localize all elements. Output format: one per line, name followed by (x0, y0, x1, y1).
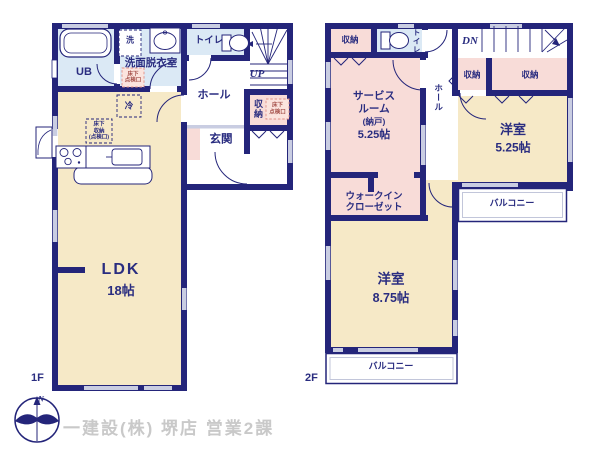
toilet-icon-1f (222, 35, 249, 51)
floor2-label: 2F (305, 372, 318, 384)
room-label-storage-1f: 収納 (252, 99, 262, 119)
fridge-label: 冷 (125, 101, 134, 110)
room-label-service-1: サービス (353, 91, 395, 103)
stove-icon (56, 146, 86, 168)
stairs-up-label: UP (250, 68, 265, 80)
room-size-western-b: 8.75帖 (373, 292, 410, 306)
sink-icon (150, 28, 180, 53)
balcony-right-label: バルコニー (490, 199, 535, 209)
underfloor-storage-label: 床下収納(点検口) (89, 121, 109, 141)
inspection-hatch-label-storage: 床下点検口 (269, 103, 286, 116)
room-label-storage-2f-c: 収納 (521, 70, 538, 79)
stairs-down-icon (482, 26, 567, 52)
closet-door-chevrons-1f (252, 131, 284, 138)
room-label-service-3: (納戸) (363, 117, 386, 126)
room-label-toilet-1f: トイレ (195, 36, 224, 46)
room-size-ldk: 18帖 (107, 284, 134, 298)
balcony-bottom-label: バルコニー (369, 362, 414, 372)
room-label-hall-2f: ホール (433, 84, 442, 113)
compass-icon (15, 396, 59, 442)
room-label-ldk: LDK (102, 261, 141, 279)
room-size-service: 5.25帖 (358, 129, 390, 141)
credit-text: 一建設(株) 堺店 営業2課 (63, 414, 274, 439)
kitchen-door (36, 127, 52, 158)
toilet-icon-2f (381, 32, 409, 49)
room-label-western-a: 洋室 (500, 123, 526, 137)
room-label-storage-2f-b: 収納 (463, 70, 480, 79)
room-label-storage-2f-a: 収納 (341, 35, 358, 44)
room-label-wic: ウォークインクローゼット (345, 191, 402, 213)
room-label-toilet-2f: トイレ (412, 28, 420, 54)
room-label-entrance: 玄関 (210, 134, 233, 147)
room-label-western-b: 洋室 (378, 273, 405, 288)
room-label-hall-1f: ホール (198, 89, 231, 101)
floorplan-page: 1F LDK 18帖 UB 洗 洗面脱衣室 トイレ ホール UP 収納 玄関 冷… (0, 0, 600, 450)
room-label-service-2: ルーム (358, 104, 389, 116)
stairs-down-label: DN (462, 35, 478, 47)
washer-label: 洗 (126, 37, 134, 46)
floor1-label: 1F (31, 372, 44, 384)
room-size-western-a: 5.25帖 (495, 141, 530, 154)
room-label-washroom: 洗面脱衣室 (125, 58, 178, 70)
inspection-hatch-label-washroom: 床下点検口 (125, 71, 142, 84)
compass-north-label: N (38, 396, 44, 405)
room-label-ub: UB (76, 66, 92, 78)
